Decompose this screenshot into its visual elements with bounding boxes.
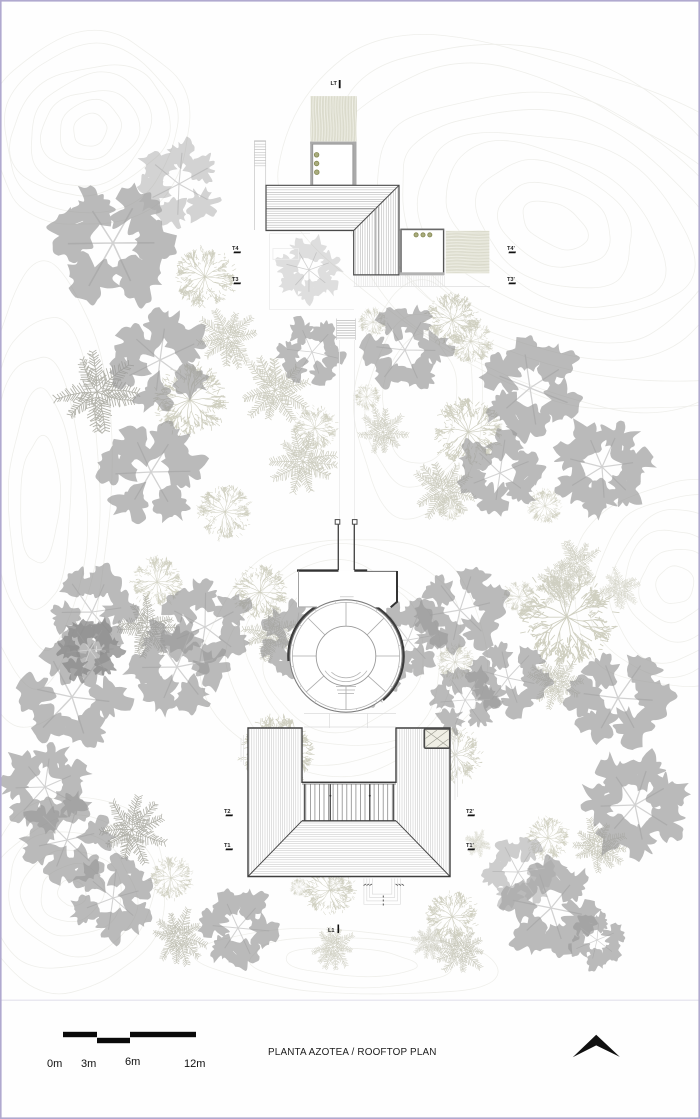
svg-text:12m: 12m — [184, 1058, 205, 1070]
svg-text:0m: 0m — [47, 1058, 62, 1070]
svg-text:PLANTA AZOTEA / ROOFTOP PLAN: PLANTA AZOTEA / ROOFTOP PLAN — [268, 1047, 437, 1058]
svg-text:T4: T4 — [232, 246, 239, 252]
svg-text:T3: T3 — [232, 277, 239, 283]
svg-text:6m: 6m — [125, 1056, 140, 1068]
svg-text:T4': T4' — [507, 246, 516, 252]
svg-text:T2': T2' — [466, 809, 475, 815]
svg-text:L1: L1 — [328, 928, 335, 934]
svg-text:LT: LT — [331, 81, 338, 87]
svg-text:T2: T2 — [224, 809, 231, 815]
svg-text:T1': T1' — [466, 843, 475, 849]
svg-text:T3': T3' — [507, 277, 516, 283]
svg-text:T1: T1 — [224, 843, 231, 849]
svg-text:3m: 3m — [81, 1058, 96, 1070]
